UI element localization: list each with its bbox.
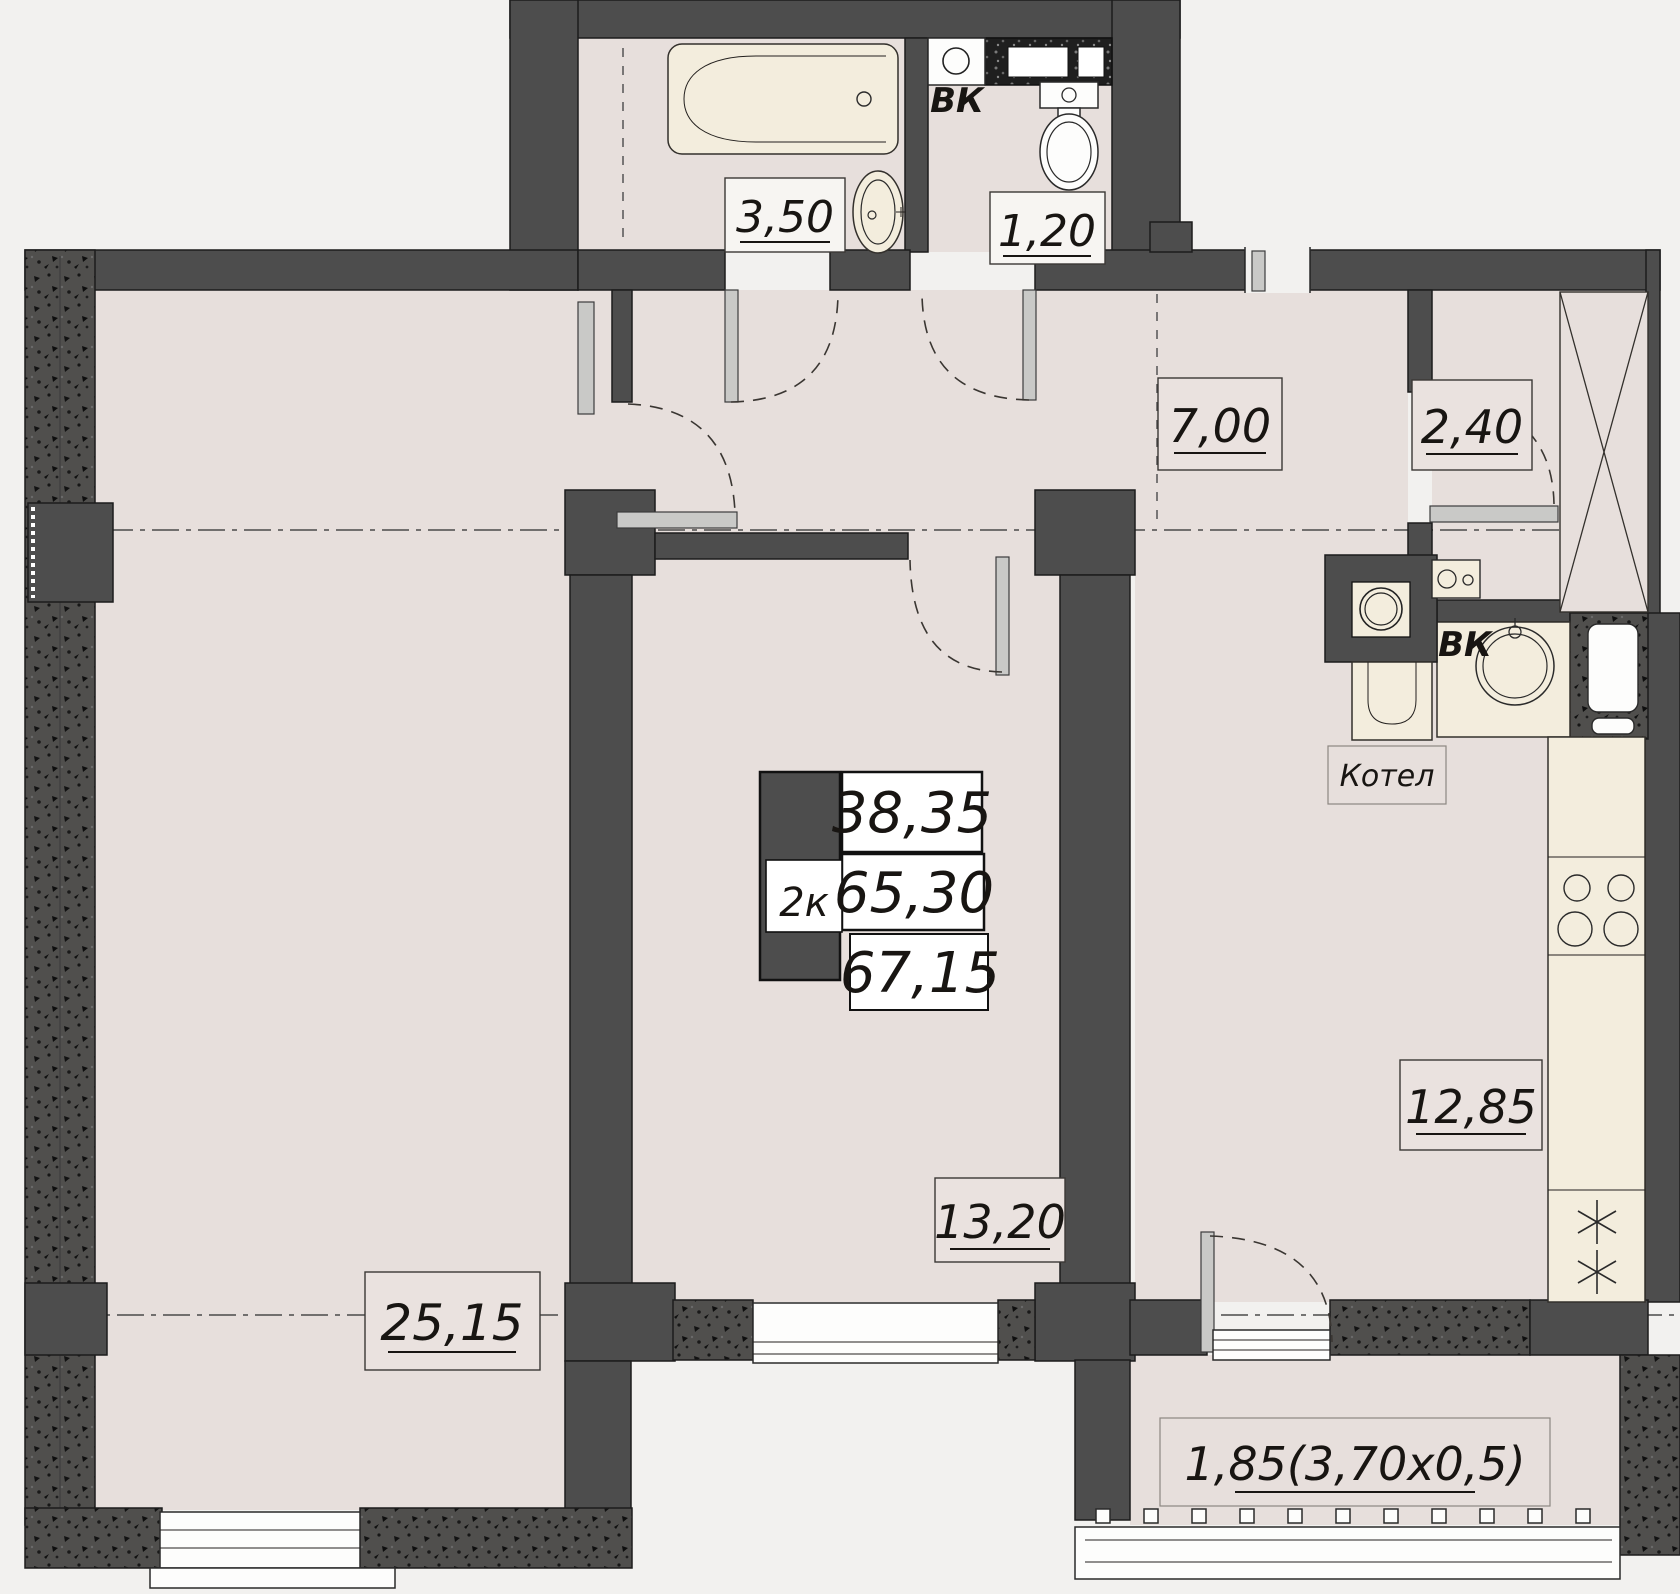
- room-label-balcony: 1,85(3,70x0,5): [1160, 1418, 1550, 1506]
- washing-machine: [1432, 560, 1480, 598]
- living-door-jamb: [578, 302, 594, 414]
- svg-text:Котел: Котел: [1340, 759, 1435, 794]
- closet-door-leaf: [1430, 506, 1558, 522]
- svg-text:67,15: 67,15: [840, 941, 1000, 1006]
- label-riser-kitchen: ВК: [1438, 625, 1494, 665]
- svg-text:3,50: 3,50: [736, 192, 834, 243]
- bedroom-door-leaf: [996, 557, 1009, 675]
- living-room-window: [150, 1512, 395, 1588]
- bathtub: [668, 44, 898, 154]
- room-label-wc: 1,20: [990, 192, 1105, 264]
- unit-info-table: 2к 38,35 65,30 67,15: [760, 772, 1000, 1010]
- floor-plan: 3,50 1,20 7,00 2,40 12,85 13,20 25,15 1,…: [0, 0, 1680, 1594]
- room-label-hallway: 7,00: [1158, 378, 1282, 470]
- entrance-door: [1245, 247, 1310, 293]
- room-label-kitchen: 12,85: [1400, 1060, 1542, 1150]
- svg-text:7,00: 7,00: [1169, 399, 1271, 453]
- label-boiler: Котел: [1328, 746, 1446, 804]
- wc-vent-box: [928, 38, 985, 85]
- svg-text:65,30: 65,30: [834, 861, 994, 926]
- svg-text:13,20: 13,20: [934, 1195, 1066, 1249]
- balcony-door-leaf: [1201, 1232, 1214, 1352]
- kitchen-vent-shaft: [1325, 555, 1437, 662]
- boiler: [1352, 662, 1432, 740]
- room-label-closet: 2,40: [1412, 380, 1532, 470]
- bedroom-window: [753, 1303, 998, 1363]
- room-label-bedroom: 13,20: [934, 1178, 1066, 1262]
- floor-plan-drawing: 3,50 1,20 7,00 2,40 12,85 13,20 25,15 1,…: [0, 0, 1680, 1594]
- svg-text:38,35: 38,35: [832, 781, 992, 846]
- svg-text:1,85(3,70x0,5): 1,85(3,70x0,5): [1184, 1437, 1525, 1491]
- wc-riser-shaft: [928, 38, 1112, 85]
- svg-text:2к: 2к: [779, 880, 829, 926]
- room-label-living: 25,15: [365, 1272, 540, 1370]
- label-riser-wc: ВК: [930, 81, 986, 121]
- svg-text:2,40: 2,40: [1421, 400, 1523, 454]
- svg-text:1,20: 1,20: [998, 206, 1096, 257]
- bathroom-door-leaf: [725, 290, 738, 402]
- svg-text:25,15: 25,15: [380, 1294, 523, 1352]
- svg-text:12,85: 12,85: [1405, 1080, 1537, 1134]
- toilet: [1040, 82, 1098, 190]
- balcony-door-sill: [1213, 1330, 1330, 1360]
- room-label-bathroom: 3,50: [725, 178, 845, 252]
- wc-door-leaf: [1023, 290, 1036, 400]
- balcony-railing: [1075, 1509, 1620, 1579]
- wardrobe: [1560, 292, 1648, 612]
- living-door-leaf: [617, 512, 737, 528]
